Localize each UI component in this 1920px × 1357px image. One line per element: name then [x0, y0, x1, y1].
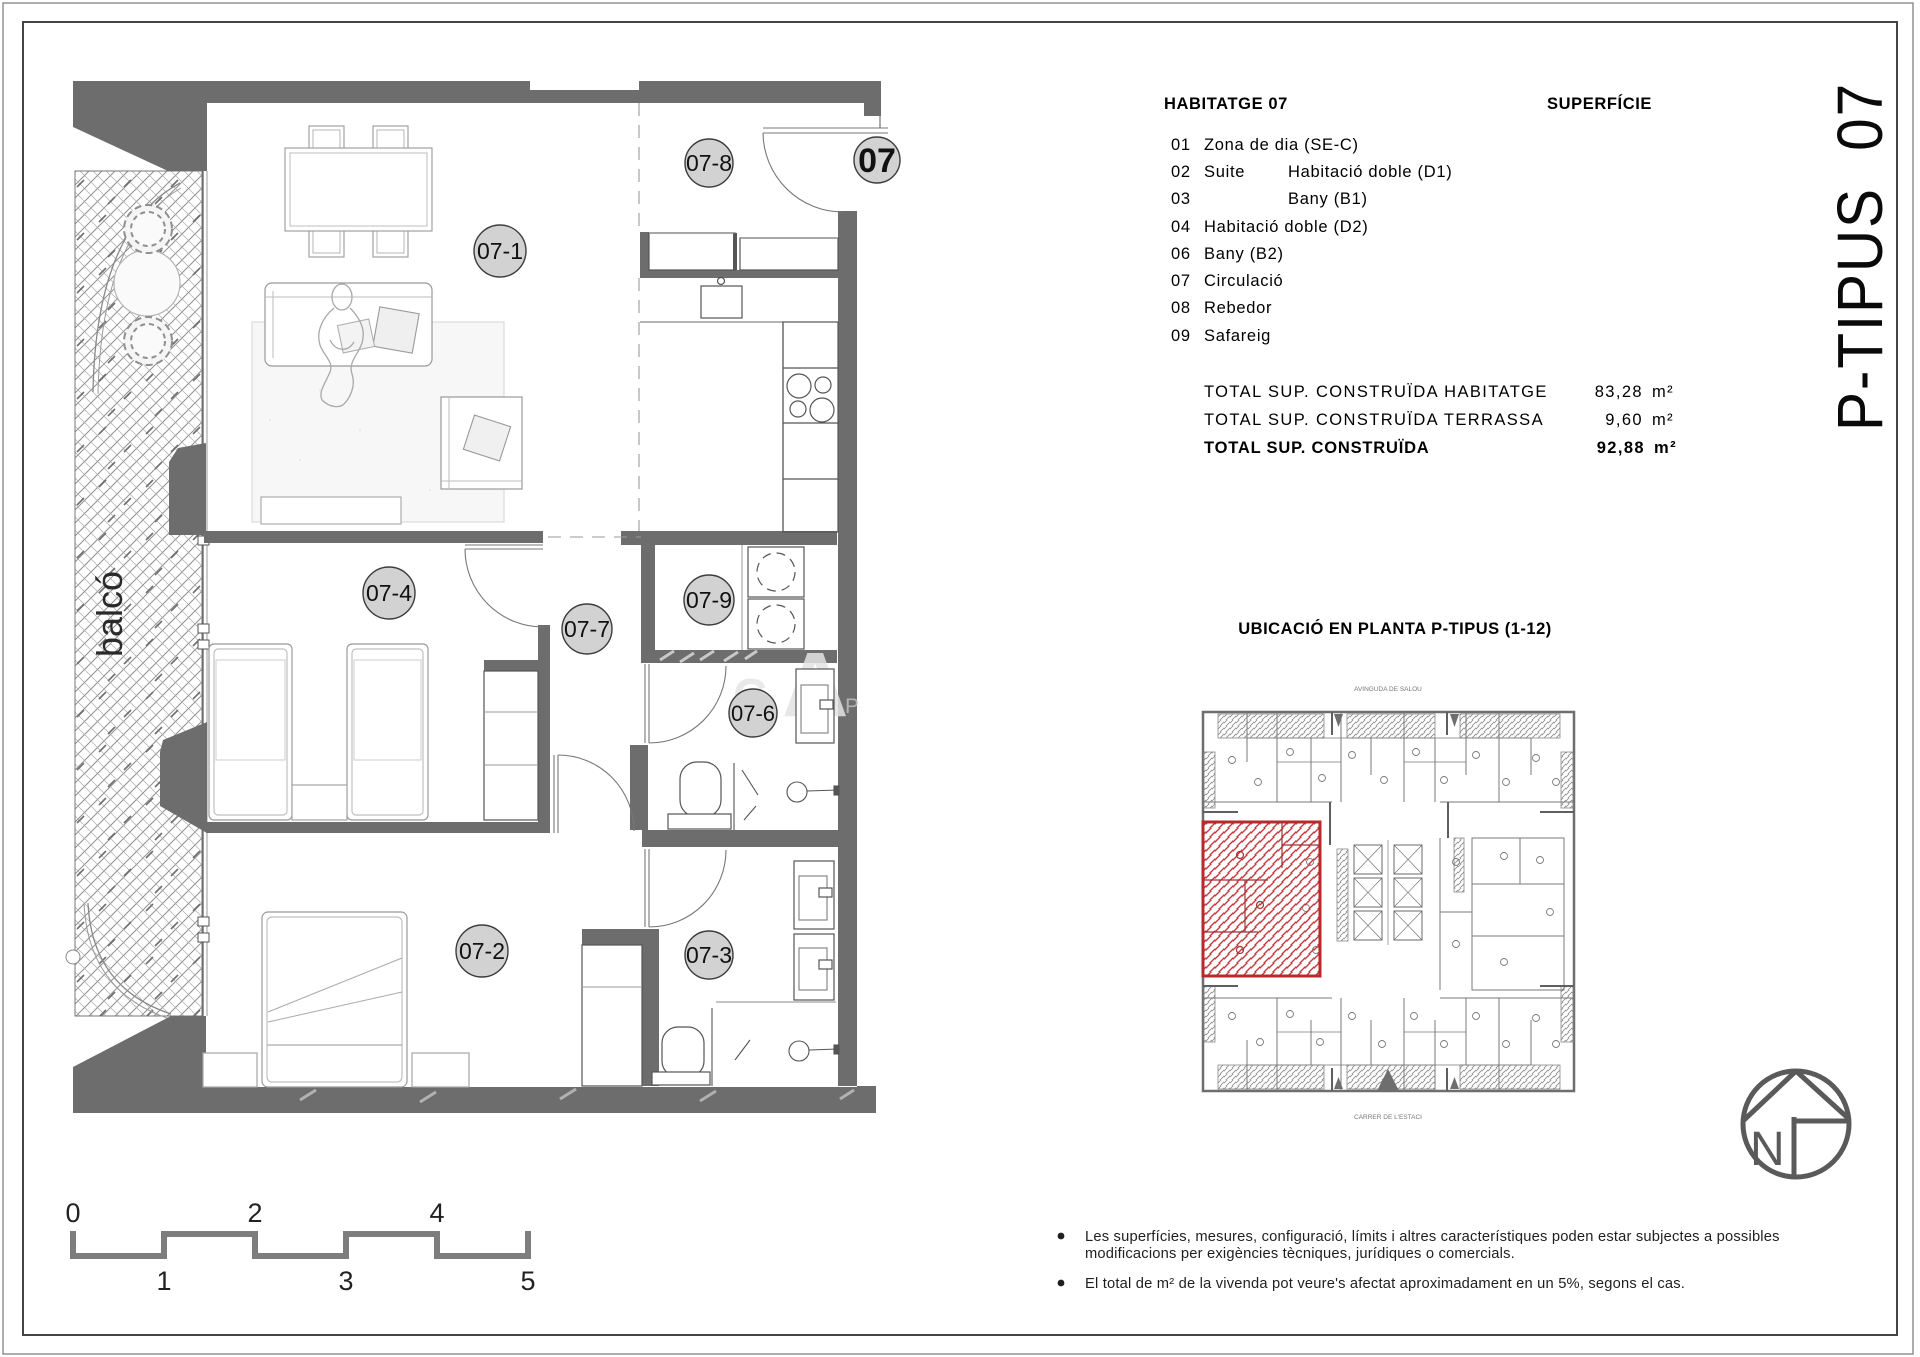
svg-text:07-3: 07-3	[686, 942, 732, 968]
svg-text:07-9: 07-9	[686, 587, 732, 613]
svg-text:07: 07	[1171, 272, 1191, 290]
svg-text:83,28: 83,28	[1595, 383, 1643, 401]
svg-text:m²: m²	[1652, 383, 1674, 401]
svg-text:07-8: 07-8	[686, 150, 732, 176]
svg-text:4: 4	[429, 1198, 444, 1228]
svg-text:Bany (B1): Bany (B1)	[1288, 190, 1368, 208]
svg-text:92,88: 92,88	[1597, 439, 1645, 457]
svg-text:TOTAL SUP. CONSTRUÏDA TERRASSA: TOTAL SUP. CONSTRUÏDA TERRASSA	[1204, 411, 1544, 429]
svg-text:P: P	[845, 695, 859, 718]
svg-text:modificacions per exigències t: modificacions per exigències tècniques, …	[1085, 1246, 1515, 1262]
svg-text:HABITATGE 07: HABITATGE 07	[1164, 95, 1288, 113]
svg-text:m²: m²	[1652, 411, 1674, 429]
svg-text:01: 01	[1171, 136, 1191, 154]
svg-text:07-4: 07-4	[366, 580, 412, 606]
svg-text:07-1: 07-1	[477, 238, 523, 264]
svg-text:Suite: Suite	[1204, 163, 1245, 181]
svg-text:1: 1	[156, 1266, 171, 1296]
svg-text:CARRER DE L'ESTACI: CARRER DE L'ESTACI	[1354, 1114, 1422, 1121]
svg-text:TOTAL SUP. CONSTRUÏDA HABITATG: TOTAL SUP. CONSTRUÏDA HABITATGE	[1204, 383, 1548, 401]
svg-text:07: 07	[858, 142, 896, 180]
svg-text:02: 02	[1171, 163, 1191, 181]
svg-text:Rebedor: Rebedor	[1204, 299, 1272, 317]
svg-text:5: 5	[520, 1266, 535, 1296]
svg-text:Safareig: Safareig	[1204, 327, 1271, 345]
svg-text:2: 2	[247, 1198, 262, 1228]
svg-text:09: 09	[1171, 327, 1191, 345]
svg-text:balcó: balcó	[89, 571, 130, 657]
svg-text:Bany (B2): Bany (B2)	[1204, 245, 1284, 263]
svg-text:07-2: 07-2	[459, 938, 505, 964]
svg-text:Circulació: Circulació	[1204, 272, 1283, 290]
svg-text:3: 3	[338, 1266, 353, 1296]
svg-text:UBICACIÓ EN PLANTA P-TIPUS (1-: UBICACIÓ EN PLANTA P-TIPUS (1-12)	[1238, 619, 1552, 638]
svg-text:06: 06	[1171, 245, 1191, 263]
svg-text:04: 04	[1171, 218, 1191, 236]
svg-text:TOTAL SUP. CONSTRUÏDA: TOTAL SUP. CONSTRUÏDA	[1204, 439, 1430, 457]
svg-text:08: 08	[1171, 299, 1191, 317]
svg-text:N: N	[1750, 1123, 1785, 1176]
svg-text:m²: m²	[1654, 439, 1677, 457]
svg-text:El total de m² de la vivenda p: El total de m² de la vivenda pot veure's…	[1085, 1276, 1685, 1292]
svg-text:9,60: 9,60	[1605, 411, 1643, 429]
svg-text:03: 03	[1171, 190, 1191, 208]
svg-text:07-7: 07-7	[564, 616, 610, 642]
svg-text:Habitació doble (D2): Habitació doble (D2)	[1204, 218, 1368, 236]
svg-text:Les superfícies, mesures, conf: Les superfícies, mesures, configuració, …	[1085, 1229, 1780, 1245]
svg-text:Zona de dia (SE-C): Zona de dia (SE-C)	[1204, 136, 1359, 154]
svg-text:P-TIPUS 07: P-TIPUS 07	[1824, 82, 1896, 431]
svg-text:Habitació doble (D1): Habitació doble (D1)	[1288, 163, 1452, 181]
svg-text:07-6: 07-6	[731, 701, 775, 726]
svg-text:0: 0	[65, 1198, 80, 1228]
svg-text:AVINGUDA DE SALOU: AVINGUDA DE SALOU	[1354, 686, 1422, 693]
svg-text:SUPERFÍCIE: SUPERFÍCIE	[1547, 94, 1652, 113]
